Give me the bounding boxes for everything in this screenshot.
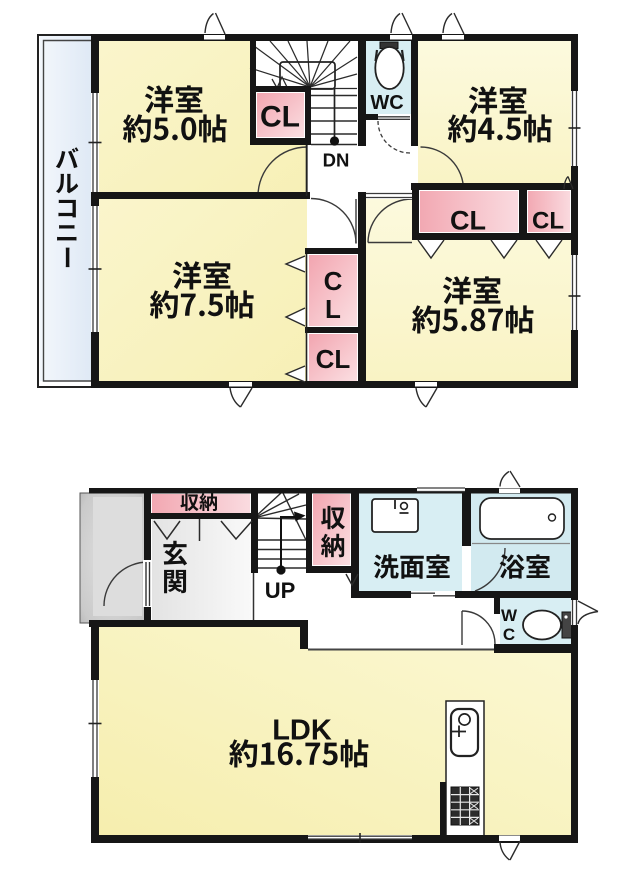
svg-text:DN: DN — [323, 150, 350, 171]
svg-text:W: W — [501, 606, 518, 625]
svg-text:LDK: LDK — [272, 714, 332, 746]
svg-text:CL: CL — [260, 101, 300, 134]
svg-text:CL: CL — [532, 208, 564, 235]
svg-text:C: C — [324, 266, 343, 296]
svg-text:C: C — [503, 625, 515, 644]
svg-text:L: L — [325, 294, 341, 324]
svg-text:CL: CL — [450, 206, 486, 236]
svg-text:CL: CL — [316, 344, 351, 374]
svg-text:WC: WC — [370, 92, 403, 114]
svg-text:UP: UP — [265, 578, 296, 603]
